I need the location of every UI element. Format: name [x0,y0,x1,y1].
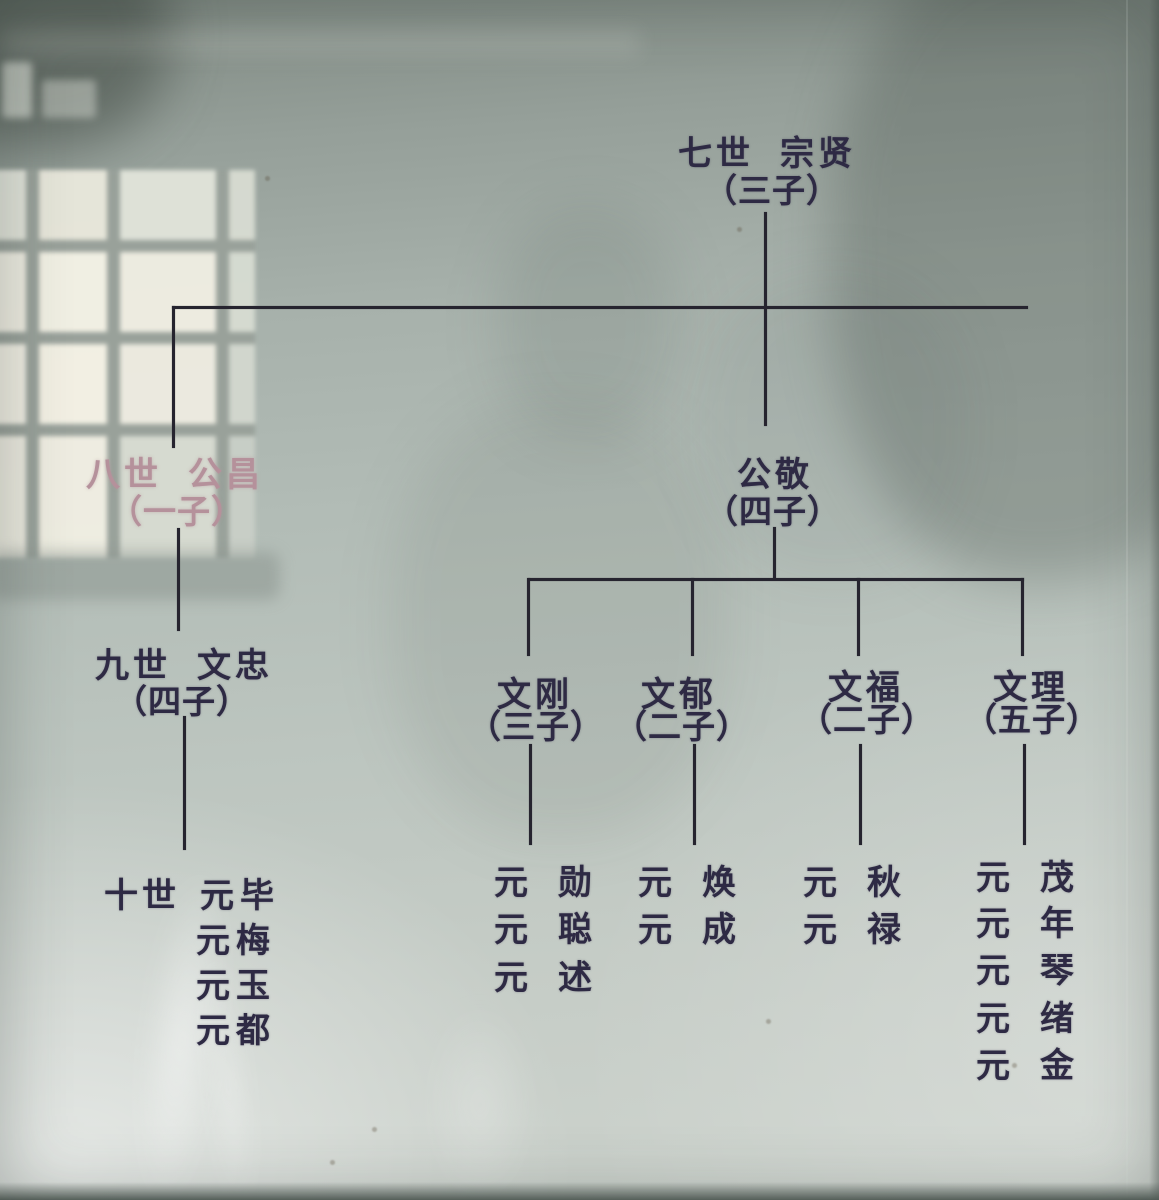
gen9-left-son-count: （四子） [114,675,250,723]
glass-seam [1126,0,1128,1200]
gen10-name: 元金 [976,1038,1104,1087]
gen10-name: 元年 [976,896,1104,945]
gen9-branch3-son-count: （五子） [964,693,1100,741]
dust-speck [372,1127,377,1132]
connector-wenzhong-to-gen10 [183,716,186,850]
gen10-name: 元成 [638,902,766,951]
gen7-son-count: （三子） [704,164,840,212]
connector-bus-to-wenfu [857,578,860,656]
photographer-arm-reflection [700,270,970,580]
connector-gongchang-to-wenzhong [177,528,180,631]
gen9-branch1-son-count: （二子） [614,700,750,748]
connector-wenfu-to-children [859,744,862,845]
connector-gen9-bus [528,578,1024,581]
ghost-reflection-glyph [2,62,32,118]
gen10-name: 元秋 [803,855,931,904]
connector-wenli-to-children [1023,744,1026,845]
gen10-name: 元述 [494,950,622,999]
window-pane [120,344,216,424]
ghost-reflection-glyph [42,80,96,118]
gen8-right-son-count: （四子） [705,485,841,533]
glass-streak [420,1000,540,1200]
window-pane [39,170,107,240]
gen10-name: 元焕 [638,855,766,904]
connector-bus-to-gongchang [172,306,175,448]
window-pane [120,252,216,332]
connector-wengang-to-children [529,744,532,845]
dust-speck [330,1160,335,1165]
gen10-name: 元玉 [196,958,276,1007]
gen10-name: 元绪 [976,991,1104,1040]
photographer-body-reflection [390,400,730,840]
family-tree-photo: 七世宗贤 （三子） 八世公昌 （一子） 公敬 （四子） 九世文忠 （四子） 文刚… [0,0,1159,1200]
connector-bus-to-wengang [527,578,530,656]
window-pane [0,344,26,424]
window-pane [0,252,26,332]
window-pane [229,252,255,332]
glass-glare-band [0,30,640,56]
gen10-name: 元禄 [803,902,931,951]
gen10-name: 元毕 [200,876,280,916]
gen10-name: 元琴 [976,943,1104,992]
connector-gen8-bus [172,306,1028,309]
photo-edge-bottom [0,1182,1159,1200]
window-pane [120,170,216,240]
gen9-branch2-son-count: （二子） [799,693,935,741]
window-pane [0,436,26,558]
connector-bus-to-wenyu [691,578,694,656]
connector-gen7-to-bus [764,212,767,426]
gen10-name: 元梅 [196,913,276,962]
window-pane [229,170,255,240]
window-pane [39,252,107,332]
gen10-generation-label: 十世 [104,876,180,916]
connector-bus-to-wenli [1021,578,1024,656]
dust-speck [766,1019,771,1024]
gen10-name: 元勋 [494,855,622,904]
node-gen10-row: 十世元毕 [104,868,280,917]
dust-speck [265,176,270,181]
gen9-branch0-son-count: （三子） [468,700,604,748]
window-pane [0,170,26,240]
gen10-name: 元都 [196,1003,276,1052]
window-pane [39,344,107,424]
gen10-name: 元茂 [976,850,1104,899]
gen10-name: 元聪 [494,902,622,951]
photo-edge-right [1149,0,1159,1200]
connector-gongjing-to-bus [773,527,776,580]
window-sill-shadow [0,552,280,600]
gen8-left-son-count: （一子） [109,485,245,533]
window-pane [229,344,255,424]
connector-wenyu-to-children [693,744,696,845]
dust-speck [737,227,742,232]
